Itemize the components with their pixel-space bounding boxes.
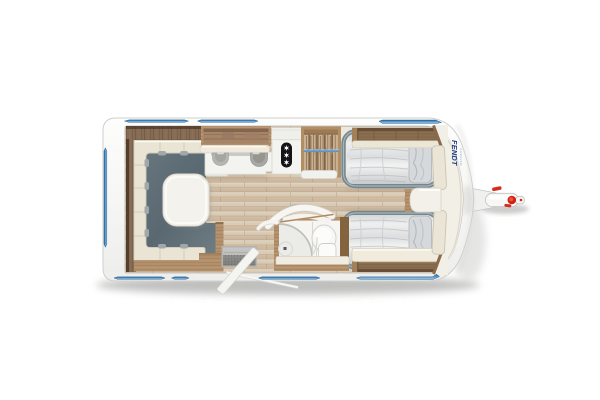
svg-text:FENDT: FENDT bbox=[450, 140, 459, 167]
svg-text:CARAVAN: CARAVAN bbox=[459, 149, 463, 167]
